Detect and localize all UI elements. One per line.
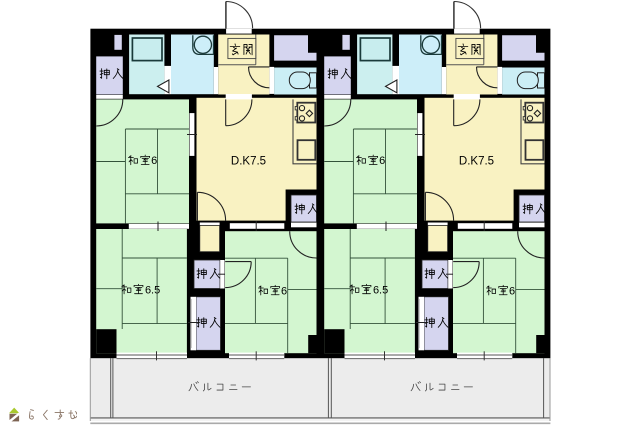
svg-text:6: 6	[509, 286, 515, 298]
svg-text:6: 6	[151, 155, 157, 167]
svg-text:D.K7.5: D.K7.5	[459, 156, 494, 168]
svg-text:D.K7.5: D.K7.5	[231, 156, 266, 168]
svg-text:6: 6	[281, 286, 287, 298]
svg-text:6.5: 6.5	[373, 284, 388, 296]
svg-text:6: 6	[379, 155, 385, 167]
svg-text:6.5: 6.5	[145, 284, 160, 296]
